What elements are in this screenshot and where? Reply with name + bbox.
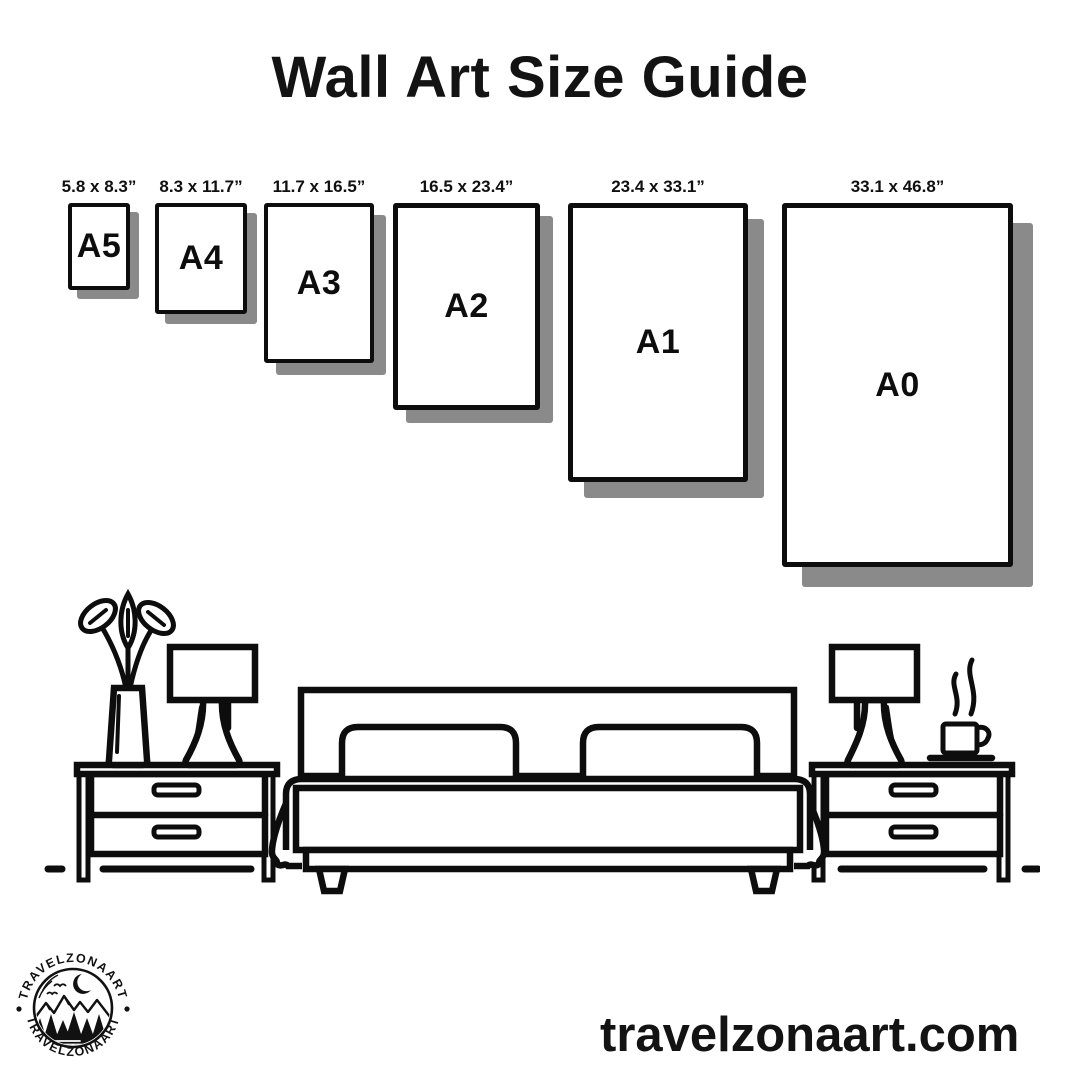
steam [954, 674, 957, 714]
size-group-a5: 5.8 x 8.3” A5 [68, 177, 130, 290]
website-url: travelzonaart.com [600, 1007, 1019, 1063]
lamp-shade [832, 647, 917, 700]
steam [970, 660, 974, 714]
left-nightstand [77, 765, 277, 880]
size-dimensions-a5: 5.8 x 8.3” [62, 177, 137, 197]
size-frame-a2: A2 [393, 203, 540, 410]
size-group-a3: 11.7 x 16.5” A3 [264, 177, 374, 363]
logo-ring-text-top: TRAVELZONAART [16, 951, 130, 1001]
bed-foot [751, 869, 777, 891]
bedroom-illustration [40, 588, 1040, 908]
size-frame-a4: A4 [155, 203, 247, 314]
size-frame-a3: A3 [264, 203, 374, 363]
flower-vase [75, 594, 179, 765]
pillow [583, 727, 757, 779]
size-dimensions-a3: 11.7 x 16.5” [273, 177, 366, 197]
travelzonaart-logo: TRAVELZONAART TRAVELZONAART [8, 942, 138, 1076]
size-group-a1: 23.4 x 33.1” A1 [568, 177, 748, 482]
size-code-a0: A0 [875, 366, 919, 405]
size-group-a0: 33.1 x 46.8” A0 [782, 177, 1013, 567]
separator-dot [124, 1006, 129, 1011]
pillow [342, 727, 516, 779]
size-group-a2: 16.5 x 23.4” A2 [393, 177, 540, 410]
size-dimensions-a0: 33.1 x 46.8” [851, 177, 945, 197]
lamp-shade [170, 647, 255, 700]
nightstand-top [812, 765, 1012, 774]
bird-icon [54, 984, 66, 986]
page-title: Wall Art Size Guide [0, 44, 1080, 111]
separator-dot [16, 1006, 21, 1011]
size-frame-a5: A5 [68, 203, 130, 290]
drawer-handle [891, 785, 936, 795]
wall-art-size-guide-infographic: Wall Art Size Guide 5.8 x 8.3” A5 8.3 x … [0, 0, 1080, 1080]
size-code-a5: A5 [77, 227, 121, 266]
size-dimensions-a2: 16.5 x 23.4” [420, 177, 514, 197]
lamp-base [185, 700, 239, 765]
cup-body [943, 724, 977, 753]
crescent-moon-icon [73, 974, 91, 994]
drawer-handle [154, 827, 199, 837]
bed [272, 690, 824, 891]
size-frame-a0: A0 [782, 203, 1013, 567]
logo-text-top: TRAVELZONAART [16, 951, 130, 1001]
nightstand-top [77, 765, 277, 774]
drawer-handle [154, 785, 199, 795]
size-code-a3: A3 [297, 264, 341, 303]
drawer-handle [891, 827, 936, 837]
size-code-a4: A4 [179, 239, 223, 278]
nightstand-leg [79, 774, 88, 880]
coffee-cup [930, 660, 992, 758]
size-group-a4: 8.3 x 11.7” A4 [155, 177, 247, 314]
mattress [296, 788, 800, 850]
bird-icon [47, 993, 57, 995]
vase-highlight [117, 696, 119, 752]
size-dimensions-a1: 23.4 x 33.1” [611, 177, 705, 197]
size-dimensions-a4: 8.3 x 11.7” [159, 177, 242, 197]
size-code-a2: A2 [444, 287, 488, 326]
left-table-lamp [170, 647, 255, 765]
right-nightstand [812, 765, 1012, 880]
size-frame-a1: A1 [568, 203, 748, 482]
bed-base [306, 850, 790, 869]
bed-foot [319, 869, 345, 891]
arc-ray [39, 981, 52, 998]
size-code-a1: A1 [636, 323, 680, 362]
vase-body [109, 688, 147, 765]
right-table-lamp [832, 647, 917, 765]
